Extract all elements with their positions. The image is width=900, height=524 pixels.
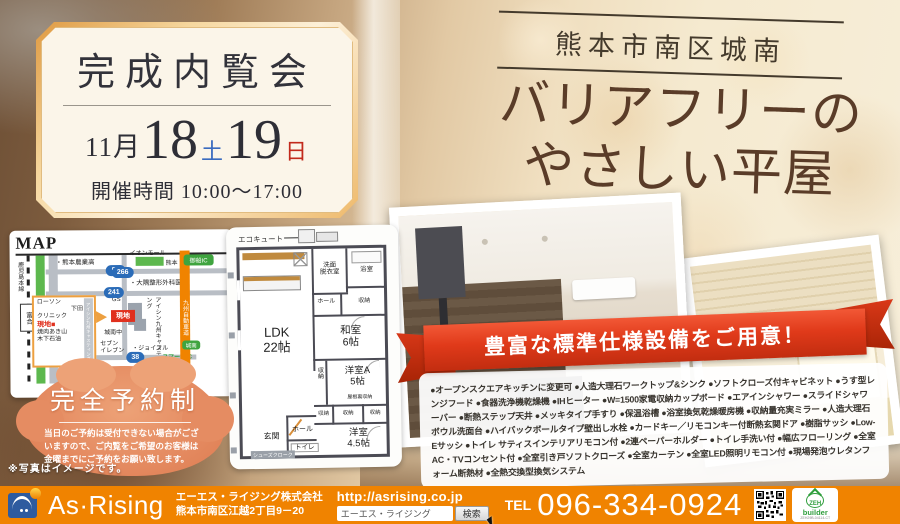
map-label-jhs: 城南中 (104, 327, 122, 336)
floorplan-ecocute-unit (298, 229, 315, 243)
room-genkan: 玄関 (256, 431, 286, 441)
closet-top: 収納 (344, 298, 384, 306)
refrigerator-space (293, 252, 307, 266)
event-day2: 19 (226, 112, 282, 168)
map-label-expressway: 九州自動車道 (180, 300, 189, 336)
room-washroom: 洗面 脱衣室 (314, 261, 346, 276)
event-date-card: 完成内覧会 11月 18 土 19 日 開催時間 10:00～17:00 (36, 22, 358, 218)
footer-bar: As·Rising エーエス・ライジング株式会社 熊本市南区江越2丁目9－20 … (0, 486, 900, 524)
url-block: http://asrising.co.jp エーエス・ライジング 検索 (337, 489, 489, 521)
company-address: 熊本市南区江越2丁目9－20 (176, 505, 323, 519)
telephone: TEL 096-334-0924 (505, 487, 743, 523)
event-time: 開催時間 10:00～17:00 (41, 175, 353, 204)
zeh-builder-badge: ZEH builder ZEH29B-04114-CT (792, 488, 838, 522)
map-mifune-ic: 御船IC (184, 254, 214, 265)
map-inset-detail: ローソン 下田 クリニック 現地■ 焼肉あき山 木下石油 アイシン九州キャスティ… (32, 295, 97, 367)
window-gap (237, 280, 240, 300)
map-title: MAP (15, 232, 226, 253)
tel-number: 096-334-0924 (537, 487, 742, 523)
map-inset-aisin: アイシン九州キャスティング (86, 302, 92, 361)
event-day1-weekday: 土 (201, 141, 223, 163)
floorplan-ecocute-label: エコキュート (238, 234, 283, 246)
closet-3: 収納 (364, 410, 386, 417)
attic-label: 屋根裏収納 (334, 395, 386, 402)
sun-icon (30, 488, 41, 499)
map-label-mall-2: 熊本 (166, 258, 178, 267)
floorplan-ecocute-line (284, 237, 298, 238)
porch-post (231, 447, 237, 453)
room-ldk: LDK 22帖 (249, 325, 306, 356)
closet-vertical: 収納 (315, 367, 325, 399)
map-label-school: ・熊本農業高 (56, 256, 95, 266)
search-widget: エーエス・ライジング 検索 (337, 506, 489, 521)
bathtub (351, 251, 381, 264)
wall (340, 293, 342, 315)
flyer: 完成内覧会 11月 18 土 19 日 開催時間 10:00～17:00 熊本市… (0, 0, 900, 524)
logo-dot (20, 509, 23, 512)
closet-1: 収納 (314, 411, 333, 418)
room-washitsu: 和室 6帖 (323, 324, 379, 349)
window-gap (238, 330, 241, 350)
room-toilet: トイレ (291, 443, 319, 453)
location-area: 熊本市南区城南 (497, 11, 844, 80)
map-site-marker: 現地 (111, 310, 135, 322)
room-hall1: ホール (312, 299, 340, 306)
company-info: エーエス・ライジング株式会社 熊本市南区江越2丁目9－20 (176, 491, 323, 518)
map-inset-connector (96, 311, 107, 323)
closet-2: 収納 (334, 410, 362, 417)
wall (286, 415, 316, 418)
reservation-title: 完全予約制 (26, 366, 224, 417)
map-route-shield-266: 266 (112, 267, 134, 278)
map-smart-ic-box: 城南 (182, 340, 200, 349)
room-a: 洋室A 5帖 (329, 366, 385, 389)
company-logo (8, 490, 42, 520)
zeh-code: ZEH29B-04114-CT (800, 517, 830, 521)
kitchen-island (243, 275, 301, 291)
photo-kitchen-aircon (572, 277, 636, 300)
map-inset-site: 現地■ (37, 321, 83, 330)
map-inset-oil: 木下石油 (37, 336, 83, 344)
reservation-rule (59, 422, 191, 423)
mouse-cursor-icon (486, 516, 497, 524)
event-day1: 18 (142, 112, 198, 168)
map-label-aisin: アイシン九州キャスティング (144, 297, 162, 363)
room-hall2: ホール (288, 426, 316, 435)
search-input[interactable]: エーエス・ライジング (337, 506, 453, 521)
ceiling-light (542, 235, 548, 241)
room-bath: 浴室 (350, 266, 384, 274)
wall (287, 439, 317, 442)
event-month: 11月 (85, 134, 141, 161)
logo-dot (25, 509, 28, 512)
event-title: 完成内覧会 (41, 27, 353, 96)
kitchen-island-counter (244, 276, 300, 281)
map-road-50 (46, 268, 227, 274)
photo-kitchen-range-hood (415, 226, 465, 299)
porch-post (228, 272, 234, 278)
wall (312, 292, 348, 295)
zeh-sub: builder (803, 509, 828, 517)
wall (346, 286, 386, 289)
tel-label: TEL (505, 497, 531, 513)
ceiling-light (482, 238, 488, 244)
wall (314, 422, 388, 425)
map-label-mall: イオンモール (130, 248, 166, 257)
floorplan-ecocute-unit2 (316, 232, 338, 242)
headline: バリアフリーの やさしい平屋 (466, 73, 894, 209)
porch-post (229, 332, 235, 338)
brand-name: As·Rising (48, 490, 164, 521)
map-label-joyful: ・ジョイフル (132, 343, 168, 352)
photo-disclaimer: ※写真はイメージです。 (8, 460, 128, 475)
search-button[interactable]: 検索 (455, 506, 489, 521)
floorplan-card: エコキュート (226, 225, 402, 470)
qr-code (754, 489, 786, 521)
porch-post (230, 392, 236, 398)
wall (314, 404, 388, 407)
map-mall-building (136, 257, 164, 266)
event-day2-weekday: 日 (285, 141, 307, 163)
background-pillar (352, 0, 400, 232)
wall (325, 361, 328, 405)
event-dates: 11月 18 土 19 日 (41, 112, 353, 168)
shoes-closet-label: シューズクローク (251, 450, 295, 459)
floorplan-drawing: LDK 22帖 洗面 脱衣室 浴室 ホール 収納 和室 6帖 収納 洋室A 5帖… (236, 245, 390, 460)
features-panel: ●オープンスクエアキッチンに変更可 ●人造大理石ワークトップ&シンク ●ソフトク… (419, 363, 890, 490)
wall (312, 314, 386, 317)
website-url: http://asrising.co.jp (337, 489, 489, 504)
company-name: エーエス・ライジング株式会社 (176, 491, 323, 505)
divider (63, 105, 331, 106)
map-label-seven: セブン イレブン (100, 341, 124, 355)
room-b: 洋室 4.5帖 (330, 428, 386, 451)
map-route-shield-241: 241 (104, 287, 124, 298)
